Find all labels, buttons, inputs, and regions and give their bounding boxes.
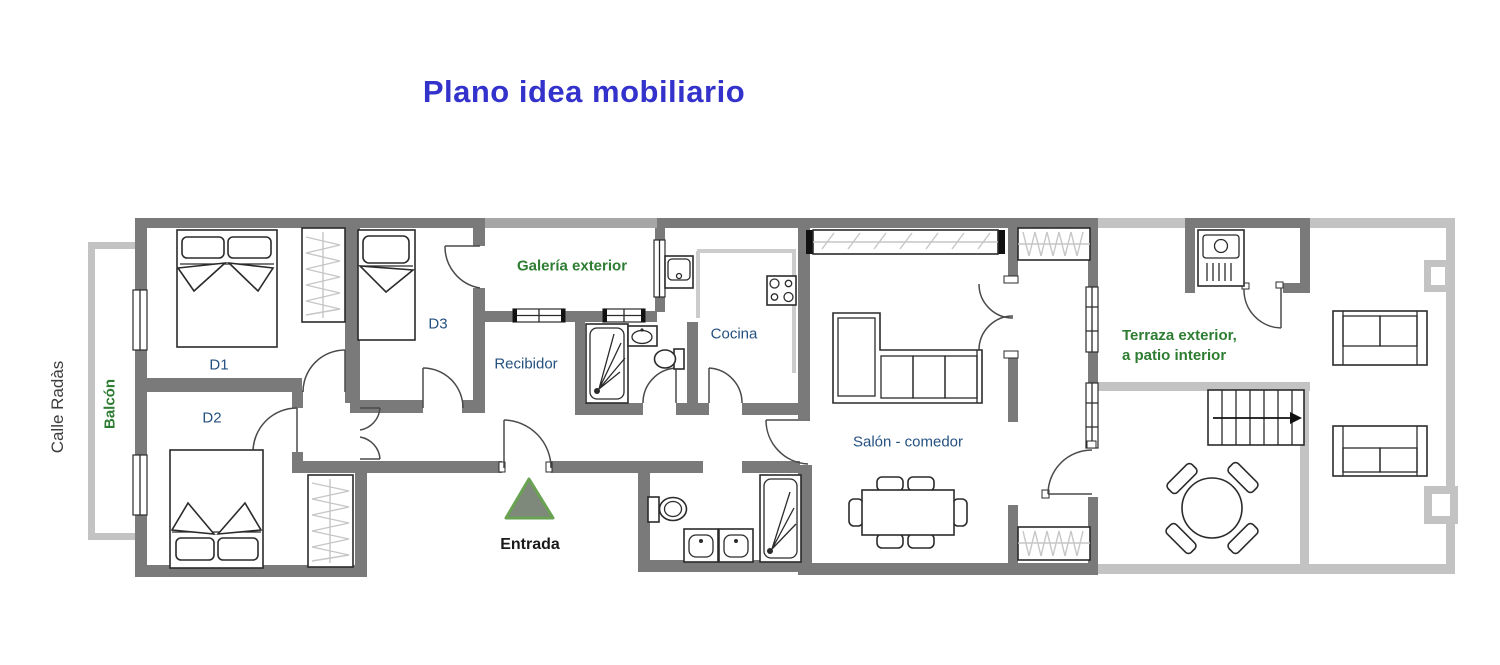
door-entrance [499, 420, 552, 472]
window [1086, 287, 1098, 352]
wall-segment [145, 378, 302, 392]
window [654, 240, 665, 297]
wall-segment [292, 390, 303, 408]
wardrobe-living-right [1018, 228, 1090, 260]
room-label-balcony: Balcón [102, 379, 119, 429]
wall-segment [485, 311, 513, 322]
door-kitchen [709, 368, 742, 403]
room-label-d2: D2 [202, 410, 221, 427]
corner-sofa [833, 313, 982, 403]
wall-segment [575, 322, 585, 403]
wall-segment [1185, 218, 1195, 293]
wall-segment [575, 403, 643, 415]
wall-segment [350, 400, 423, 413]
window [603, 309, 645, 322]
terrace-label-line2: a patio interior [1122, 346, 1272, 366]
entrance-label: Entrada [500, 536, 560, 554]
wall-segment [687, 322, 698, 415]
dining-table-set [849, 477, 967, 548]
wall-segment [798, 563, 1098, 575]
wall-segment [742, 403, 800, 415]
wall-segment [657, 218, 1098, 228]
double-swing-door-hall [360, 408, 380, 459]
double-sink-main-bath [684, 529, 753, 562]
shower-small-bath [586, 324, 628, 403]
bed-double-d2 [170, 450, 263, 568]
bed-single-d3 [358, 230, 415, 340]
wardrobe-d2 [308, 475, 353, 567]
wall-segment [742, 461, 800, 473]
wall-segment [88, 533, 140, 540]
window [513, 309, 565, 322]
wall-segment [1185, 218, 1310, 228]
kitchen-counter [697, 251, 794, 373]
sink-small-bath [628, 326, 657, 346]
washing-machine [1198, 230, 1244, 286]
wall-segment [292, 461, 502, 473]
wardrobe-living-bottom [1018, 527, 1090, 560]
wall-segment [355, 461, 367, 575]
door-living [766, 420, 810, 464]
wall-segment [655, 297, 665, 312]
wall-segment [88, 242, 138, 249]
pillar-core [1431, 267, 1445, 285]
gallery-top-wall [485, 218, 657, 228]
wall-segment [135, 350, 147, 455]
window [133, 455, 147, 515]
wall-segment [1008, 352, 1018, 422]
door-bedroom3-south [423, 368, 463, 408]
wall-segment [645, 311, 657, 322]
kitchen-sink [665, 256, 693, 288]
wall-segment [473, 218, 485, 246]
wall-segment [640, 461, 703, 473]
wall-segment [655, 228, 665, 240]
wall-segment [1098, 564, 1455, 574]
wall-segment [551, 461, 652, 473]
wall-segment [1008, 228, 1018, 282]
room-label-hallway: Recibidor [494, 356, 557, 373]
stairs [1208, 390, 1304, 445]
door-bathroom-small [643, 368, 676, 403]
street-label: Calle Radàs [48, 361, 68, 454]
room-label-kitchen: Cocina [711, 326, 758, 343]
round-table-set [1164, 461, 1259, 555]
wall-segment [1283, 283, 1310, 293]
pillar-core [1432, 494, 1450, 516]
entrance-marker [506, 479, 553, 518]
window [133, 290, 147, 350]
door-bedroom1 [303, 350, 345, 392]
wall-segment [88, 242, 95, 540]
wall-segment [565, 311, 603, 322]
bed-double-d1 [177, 230, 277, 347]
wall-segment [1008, 505, 1018, 565]
window [1086, 383, 1098, 448]
floor-plan-page: Plano idea mobiliario [0, 0, 1500, 665]
terrace-label-line1: Terraza exterior, [1122, 326, 1272, 346]
room-label-terrace: Terraza exterior, a patio interior [1122, 326, 1272, 365]
french-door-living [979, 276, 1018, 358]
wall-segment [1300, 218, 1310, 293]
room-label-gallery: Galería exterior [517, 258, 627, 275]
toilet-small-bath [655, 349, 685, 369]
door-bedroom3-gallery [445, 246, 480, 288]
room-label-d1: D1 [209, 357, 228, 374]
wall-segment [473, 288, 485, 402]
sofa-terrace-upper [1333, 311, 1427, 365]
door-utility [1242, 282, 1283, 328]
wall-segment [135, 218, 485, 228]
sofa-terrace-lower [1333, 426, 1427, 476]
wall-segment [1088, 352, 1098, 383]
stove [767, 276, 796, 305]
toilet-main-bath [648, 497, 687, 522]
wardrobe-d1 [302, 228, 345, 322]
door-terrace [1042, 441, 1096, 498]
room-label-d3: D3 [428, 316, 447, 333]
wall-segment [135, 218, 147, 290]
wardrobe-living-top [806, 230, 1005, 254]
shower-main-bath [760, 475, 801, 562]
wall-segment [676, 403, 709, 415]
room-label-living: Salón - comedor [853, 434, 963, 451]
door-bedroom2 [253, 408, 297, 452]
